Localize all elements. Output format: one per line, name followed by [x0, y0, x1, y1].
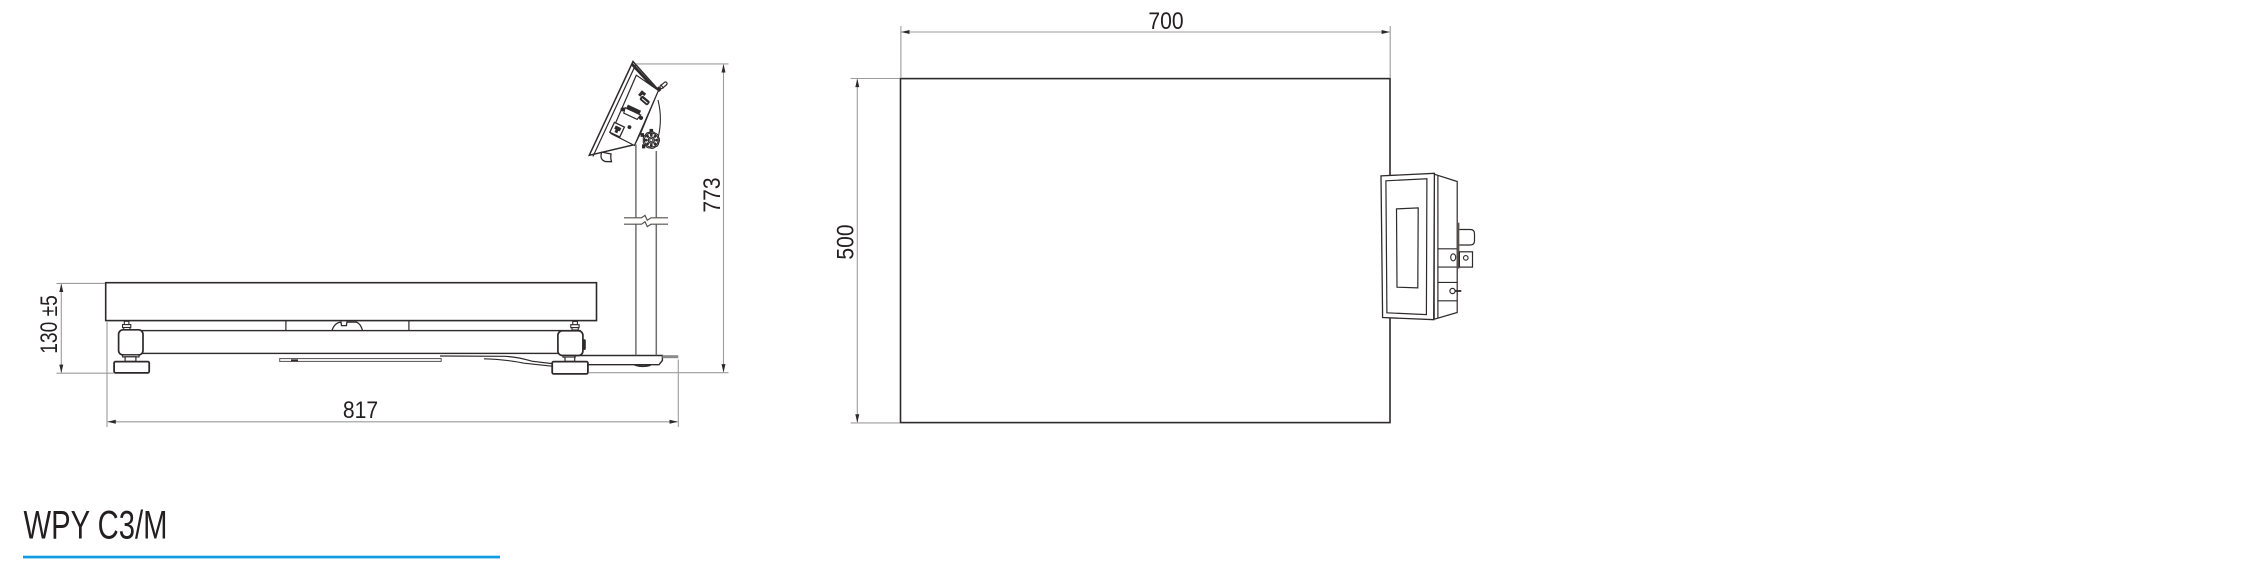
svg-text:130 ±5: 130 ±5 [35, 295, 63, 354]
svg-text:817: 817 [343, 397, 378, 424]
svg-text:773: 773 [699, 177, 726, 212]
svg-text:700: 700 [1148, 8, 1183, 35]
svg-text:500: 500 [832, 224, 859, 259]
svg-text:WPY C3/M: WPY C3/M [24, 504, 168, 547]
